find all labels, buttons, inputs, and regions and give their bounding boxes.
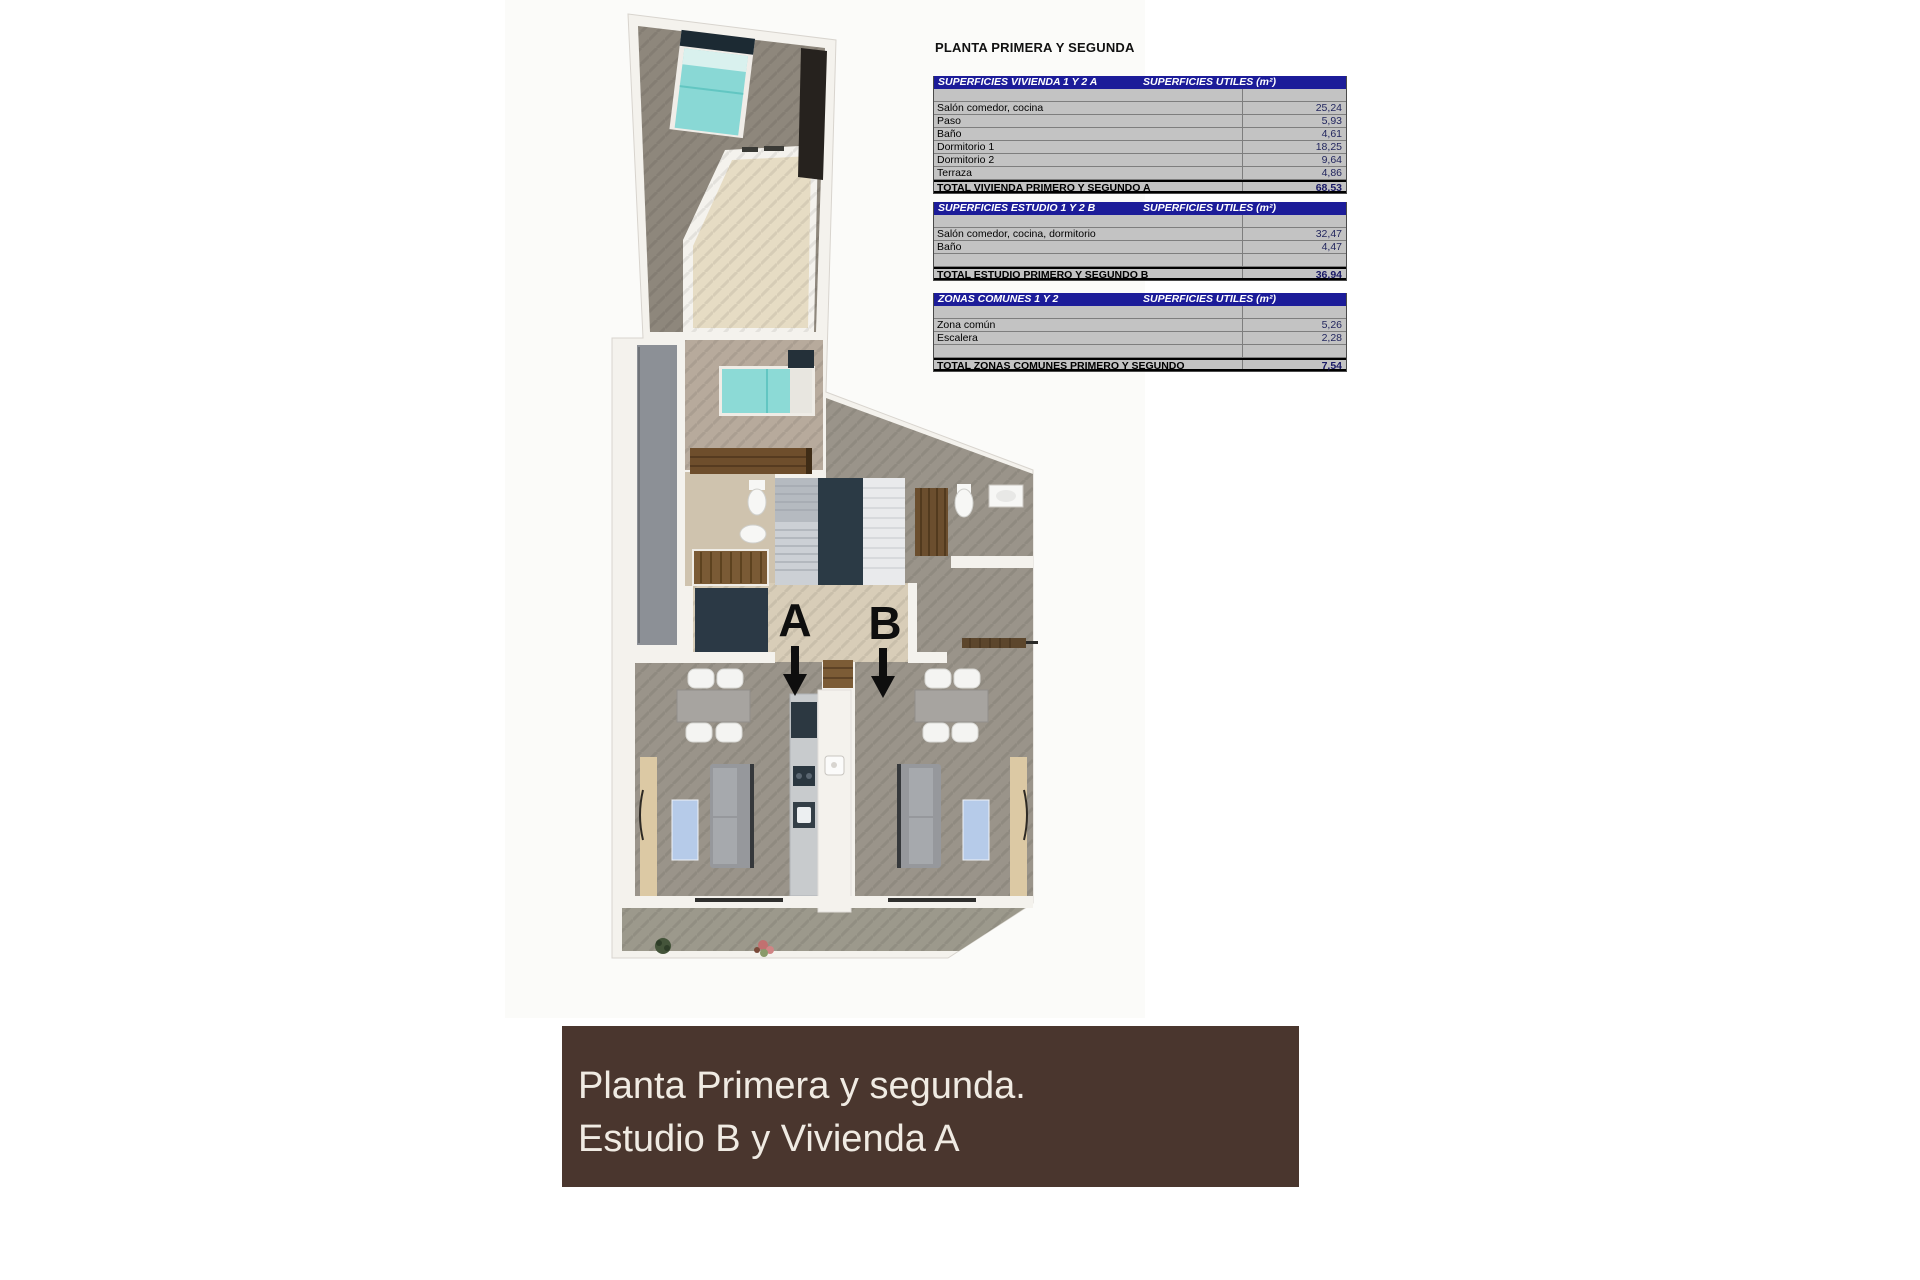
table-row: Terraza4,86 bbox=[934, 167, 1346, 180]
total-label: TOTAL VIVIENDA PRIMERO Y SEGUNDO A bbox=[934, 182, 1242, 191]
table-body: Salón comedor, cocina25,24Paso5,93Baño4,… bbox=[934, 89, 1346, 180]
table-row: Zona común5,26 bbox=[934, 319, 1346, 332]
row-label bbox=[934, 254, 1242, 266]
wall-segment bbox=[635, 652, 775, 663]
table-header-units: SUPERFICIES UTILES (m²) bbox=[1143, 76, 1276, 89]
row-label: Zona común bbox=[934, 319, 1242, 331]
table-header: ZONAS COMUNES 1 Y 2 SUPERFICIES UTILES (… bbox=[934, 293, 1346, 306]
row-value: 5,26 bbox=[1242, 319, 1346, 331]
row-value: 18,25 bbox=[1242, 141, 1346, 153]
total-label: TOTAL ESTUDIO PRIMERO Y SEGUNDO B bbox=[934, 269, 1242, 278]
kitchen-island bbox=[790, 660, 853, 912]
row-label: Salón comedor, cocina, dormitorio bbox=[934, 228, 1242, 240]
row-value bbox=[1242, 345, 1346, 357]
table-total-row: TOTAL VIVIENDA PRIMERO Y SEGUNDO A 68,53 bbox=[934, 180, 1346, 193]
unit-label-b: B bbox=[868, 597, 901, 649]
table-row bbox=[934, 254, 1346, 267]
plant bbox=[655, 938, 671, 954]
total-value: 68,53 bbox=[1242, 182, 1346, 191]
table-header-label: SUPERFICIES ESTUDIO 1 Y 2 B bbox=[938, 202, 1095, 214]
plan-sheet: A B PLANTA PRIMERA Y SEGUNDA SUPERFICIES… bbox=[0, 0, 1920, 1280]
door-lintel bbox=[888, 898, 976, 902]
table-header: SUPERFICIES VIVIENDA 1 Y 2 A SUPERFICIES… bbox=[934, 76, 1346, 89]
table-estudio-b: SUPERFICIES ESTUDIO 1 Y 2 B SUPERFICIES … bbox=[933, 202, 1347, 281]
table-row bbox=[934, 345, 1346, 358]
door-lintel bbox=[695, 898, 783, 902]
wall-segment bbox=[917, 652, 947, 663]
row-value bbox=[1242, 89, 1346, 101]
table-row: Escalera2,28 bbox=[934, 332, 1346, 345]
row-value bbox=[1242, 254, 1346, 266]
row-label: Baño bbox=[934, 128, 1242, 140]
table-body: Salón comedor, cocina, dormitorio32,47Ba… bbox=[934, 215, 1346, 267]
row-label: Dormitorio 2 bbox=[934, 154, 1242, 166]
row-value: 32,47 bbox=[1242, 228, 1346, 240]
caption-box: Planta Primera y segunda. Estudio B y Vi… bbox=[562, 1026, 1299, 1187]
table-row bbox=[934, 89, 1346, 102]
table-row: Dormitorio 29,64 bbox=[934, 154, 1346, 167]
row-value: 9,64 bbox=[1242, 154, 1346, 166]
row-label: Salón comedor, cocina bbox=[934, 102, 1242, 114]
table-row bbox=[934, 306, 1346, 319]
row-label bbox=[934, 306, 1242, 318]
row-value: 4,47 bbox=[1242, 241, 1346, 253]
panel-title: PLANTA PRIMERA Y SEGUNDA bbox=[935, 40, 1135, 55]
table-row: Baño4,61 bbox=[934, 128, 1346, 141]
row-label: Terraza bbox=[934, 167, 1242, 179]
table-total-row: TOTAL ZONAS COMUNES PRIMERO Y SEGUNDO 7,… bbox=[934, 358, 1346, 371]
areas-panel: PLANTA PRIMERA Y SEGUNDA SUPERFICIES VIV… bbox=[0, 0, 1920, 600]
table-zonas-comunes: ZONAS COMUNES 1 Y 2 SUPERFICIES UTILES (… bbox=[933, 293, 1347, 372]
sofa-a bbox=[710, 764, 754, 868]
table-row bbox=[934, 215, 1346, 228]
row-label: Escalera bbox=[934, 332, 1242, 344]
row-label: Baño bbox=[934, 241, 1242, 253]
caption-line-2: Estudio B y Vivienda A bbox=[578, 1113, 1299, 1166]
row-label bbox=[934, 89, 1242, 101]
unit-label-a: A bbox=[778, 594, 811, 646]
rug-b bbox=[963, 800, 989, 860]
table-header-label: ZONAS COMUNES 1 Y 2 bbox=[938, 293, 1058, 305]
table-row: Salón comedor, cocina, dormitorio32,47 bbox=[934, 228, 1346, 241]
table-row: Salón comedor, cocina25,24 bbox=[934, 102, 1346, 115]
dining-table-b bbox=[915, 669, 988, 742]
row-label: Paso bbox=[934, 115, 1242, 127]
row-value: 2,28 bbox=[1242, 332, 1346, 344]
row-value: 5,93 bbox=[1242, 115, 1346, 127]
table-row: Baño4,47 bbox=[934, 241, 1346, 254]
table-header-label: SUPERFICIES VIVIENDA 1 Y 2 A bbox=[938, 76, 1097, 88]
row-value: 25,24 bbox=[1242, 102, 1346, 114]
table-header-units: SUPERFICIES UTILES (m²) bbox=[1143, 293, 1276, 306]
row-value bbox=[1242, 215, 1346, 227]
rug-a bbox=[672, 800, 698, 860]
row-value: 4,61 bbox=[1242, 128, 1346, 140]
table-header-units: SUPERFICIES UTILES (m²) bbox=[1143, 202, 1276, 215]
table-row: Paso5,93 bbox=[934, 115, 1346, 128]
row-label bbox=[934, 345, 1242, 357]
sideboard-b bbox=[1010, 757, 1027, 899]
row-label bbox=[934, 215, 1242, 227]
row-value bbox=[1242, 306, 1346, 318]
row-value: 4,86 bbox=[1242, 167, 1346, 179]
sofa-b bbox=[897, 764, 941, 868]
table-row: Dormitorio 118,25 bbox=[934, 141, 1346, 154]
table-vivienda-a: SUPERFICIES VIVIENDA 1 Y 2 A SUPERFICIES… bbox=[933, 76, 1347, 194]
total-value: 7,54 bbox=[1242, 360, 1346, 369]
table-body: Zona común5,26Escalera2,28 bbox=[934, 306, 1346, 358]
table-header: SUPERFICIES ESTUDIO 1 Y 2 B SUPERFICIES … bbox=[934, 202, 1346, 215]
total-value: 36,94 bbox=[1242, 269, 1346, 278]
row-label: Dormitorio 1 bbox=[934, 141, 1242, 153]
total-label: TOTAL ZONAS COMUNES PRIMERO Y SEGUNDO bbox=[934, 360, 1242, 369]
table-total-row: TOTAL ESTUDIO PRIMERO Y SEGUNDO B 36,94 bbox=[934, 267, 1346, 280]
sideboard-a bbox=[640, 757, 657, 899]
caption-line-1: Planta Primera y segunda. bbox=[578, 1060, 1299, 1113]
